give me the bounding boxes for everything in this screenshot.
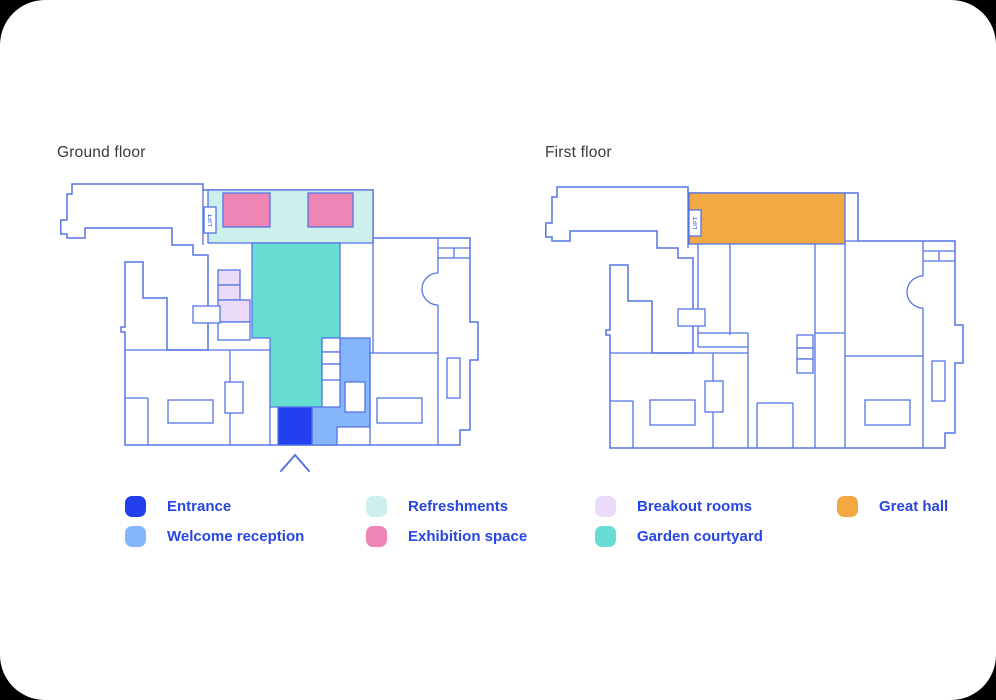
legend-item-welcome-reception: Welcome reception [125, 526, 304, 547]
room-rect [797, 335, 813, 348]
exhibition-space-area [308, 193, 353, 227]
legend-item-entrance: Entrance [125, 496, 231, 517]
room-rect [322, 338, 340, 352]
refreshments-swatch [366, 496, 387, 517]
legend-label: Refreshments [408, 496, 508, 517]
legend-item-breakout-rooms: Breakout rooms [595, 496, 752, 517]
legend-label: Exhibition space [408, 526, 527, 547]
garden-courtyard-swatch [595, 526, 616, 547]
room-rect [797, 359, 813, 373]
legend-label: Breakout rooms [637, 496, 752, 517]
furniture-rect [168, 400, 213, 423]
entrance-swatch [125, 496, 146, 517]
breakout-room-area [218, 300, 250, 322]
room-rect [322, 364, 340, 380]
lift-label: LIFT [693, 216, 699, 229]
legend-label: Great hall [879, 496, 948, 517]
legend-item-exhibition-space: Exhibition space [366, 526, 527, 547]
entrance-direction-chevron [281, 455, 309, 471]
room-rect [932, 361, 945, 401]
legend-label: Entrance [167, 496, 231, 517]
ground-floor-plan: LIFT [60, 182, 485, 477]
lift-label: LIFT [208, 213, 214, 226]
breakout-room-area [218, 270, 240, 285]
breakout-rooms-swatch [595, 496, 616, 517]
exhibition-space-swatch [366, 526, 387, 547]
welcome-reception-swatch [125, 526, 146, 547]
room-rect [678, 309, 705, 326]
room-rect [193, 306, 220, 323]
furniture-rect [650, 400, 695, 425]
furniture-rect [865, 400, 910, 425]
first-floor-plan: LIFT [545, 185, 970, 480]
great-hall-area [689, 193, 845, 244]
legend-item-refreshments: Refreshments [366, 496, 508, 517]
room-rect [218, 322, 250, 340]
breakout-room-area [218, 285, 240, 300]
entrance-area [278, 407, 312, 445]
furniture-rect [225, 382, 243, 413]
furniture-rect [377, 398, 422, 423]
legend-item-great-hall: Great hall [837, 496, 948, 517]
legend-label: Welcome reception [167, 526, 304, 547]
ground-floor-title: Ground floor [57, 144, 146, 162]
legend-label: Garden courtyard [637, 526, 763, 547]
room-rect [345, 382, 365, 412]
room-rect [797, 348, 813, 359]
room-rect [322, 352, 340, 364]
room-rect [447, 358, 460, 398]
furniture-rect [705, 381, 723, 412]
legend-item-garden-courtyard: Garden courtyard [595, 526, 763, 547]
exhibition-space-area [223, 193, 270, 227]
great-hall-swatch [837, 496, 858, 517]
first-floor-title: First floor [545, 144, 612, 162]
venue-map-screen: Ground floor First floor LIFT [0, 0, 996, 700]
